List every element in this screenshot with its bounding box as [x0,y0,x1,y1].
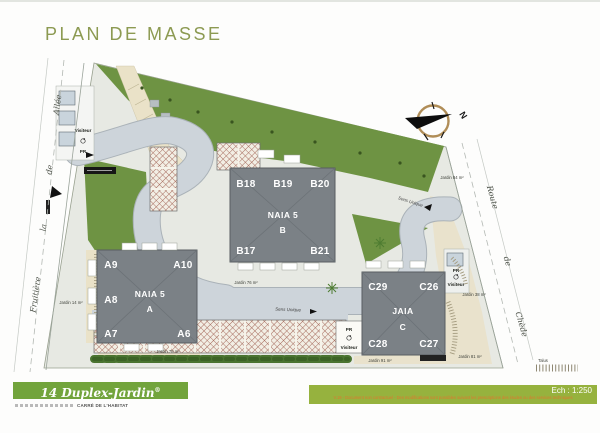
c-annotation-box [420,355,446,361]
visitor-bottom-label: Visiteur [341,345,358,350]
visitor-right-label: Visiteur [448,282,465,287]
unit-a7: A7 [104,329,118,340]
building-b: B18 B19 B20 B17 B21 NAIA 5 B [230,168,335,262]
scale-text: Ech : 1:250 [309,385,597,395]
visitor-left-pr: PR [80,149,87,154]
garden-91: Jardin 91 m² [368,358,392,363]
unit-a9: A9 [104,260,118,271]
building-b-name: NAIA 5 [268,210,299,220]
building-a-name: NAIA 5 [135,289,166,299]
unit-c29: C29 [368,282,387,293]
product-banner: 14 Duplex-Jardin® [13,382,188,399]
building-a-letter: A [147,304,154,314]
brand-line: CARRÉ DE L'HABITAT [15,403,128,408]
garden-81: Jardin 81 m² [458,354,482,359]
talus-label: Talus [538,358,548,363]
building-b-letter: B [280,225,287,235]
unit-c26: C26 [419,282,438,293]
garden-78: Jardin 78 m² [156,349,180,354]
street-left-word-4: Fruitière [28,276,42,314]
unit-a8: A8 [104,295,118,306]
street-left-word-3: la [39,223,49,232]
garden-14: Jardin 14 m² [59,300,83,305]
unit-b18: B18 [236,179,255,190]
garden-84: Jardin 84 m² [440,175,464,180]
unit-c28: C28 [368,339,387,350]
site-plan-drawing: Visiteur PR PR Visiteur PR Visiteur [0,0,600,433]
scan-edge-line [0,0,600,2]
one-way-label-bottom: Sens Unique [275,307,301,313]
street-right-word-3: Chède [514,311,530,339]
garden-76: Jardin 76 m² [234,280,258,285]
unit-c27: C27 [419,339,438,350]
scale-bar: Ech : 1:250 V.19 - Document non contract… [309,385,597,404]
street-right-word-1: Route [485,184,501,211]
small-print-smudge [15,404,73,407]
disclaimer-text: V.19 - Document non contractuel - Des mo… [309,395,597,400]
visitor-left-label: Visiteur [75,128,92,133]
compass-north-label: N [457,110,469,121]
building-c-letter: C [400,322,407,332]
building-c-name: JAIA [392,306,413,316]
garden-38: Jardin 38 m² [462,292,486,297]
parking-above-b [217,143,260,170]
visitor-right-pr: PR [453,268,460,273]
building-a: A9 A10 A8 A7 A6 NAIA 5 A [97,250,197,343]
visitor-zone-right: PR Visiteur [444,249,469,293]
unit-a10: A10 [173,260,192,271]
unit-b20: B20 [310,179,329,190]
brand-text: CARRÉ DE L'HABITAT [77,403,128,408]
unit-a6: A6 [177,329,191,340]
visitor-bottom-pr: PR [346,327,353,332]
street-right-word-2: de [502,255,513,267]
street-left-word-2: de [44,164,54,175]
unit-b17: B17 [236,246,255,257]
compass-rose: N [405,102,469,140]
talus-legend: Talus [536,358,578,368]
compass-needle [405,114,452,129]
page-title: PLAN DE MASSE [45,24,223,45]
building-c: C29 C26 C28 C27 JAIA C [362,272,445,355]
registered-mark: ® [154,387,160,394]
banner-text: 14 Duplex-Jardin [41,386,155,400]
unit-b21: B21 [310,246,329,257]
parking-column-left [150,147,177,211]
unit-b19: B19 [273,179,292,190]
plan-de-masse-page: PLAN DE MASSE [0,0,600,433]
